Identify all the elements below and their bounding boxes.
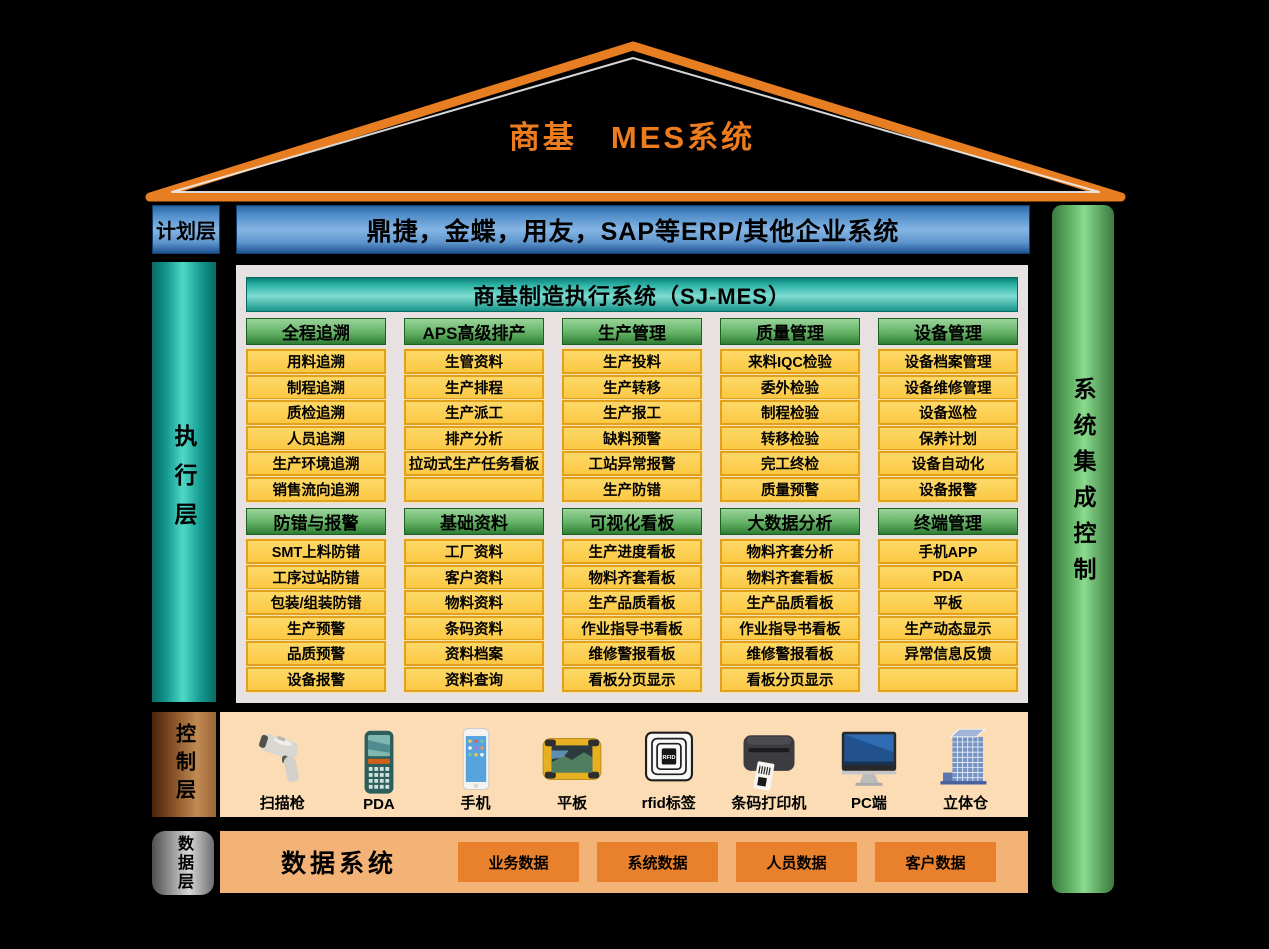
device-phone: 手机	[442, 708, 510, 817]
mes-item: 委外检验	[720, 375, 860, 400]
barcode-printer-icon	[735, 724, 803, 794]
mes-item: 工序过站防错	[246, 565, 386, 590]
column-header: 大数据分析	[720, 508, 860, 535]
device-pda: PDA	[345, 708, 413, 817]
mes-item: 生产预警	[246, 616, 386, 641]
data-system-title: 数据系统	[220, 844, 458, 880]
mes-item: 物料齐套分析	[720, 539, 860, 564]
data-layer-label: 数据层	[171, 835, 195, 892]
device-tablet: 平板	[538, 708, 606, 817]
mes-item: 来料IQC检验	[720, 349, 860, 374]
mes-column-terminal: 终端管理 手机APP PDA 平板 生产动态显示 异常信息反馈	[878, 508, 1018, 692]
mes-item: 物料资料	[404, 590, 544, 615]
control-layer-label-box: 控制层	[152, 712, 216, 817]
mes-item: 销售流向追溯	[246, 477, 386, 502]
column-items: 设备档案管理 设备维修管理 设备巡检 保养计划 设备自动化 设备报警	[878, 349, 1018, 502]
control-layer-label: 控制层	[170, 723, 199, 807]
column-items: 生产进度看板 物料齐套看板 生产品质看板 作业指导书看板 维修警报看板 看板分页…	[562, 539, 702, 692]
pc-icon	[835, 724, 903, 794]
device-label: PDA	[363, 796, 395, 813]
mes-column-bigdata: 大数据分析 物料齐套分析 物料齐套看板 生产品质看板 作业指导书看板 维修警报看…	[720, 508, 860, 692]
data-layer-label-box: 数据层	[152, 831, 214, 895]
diagram-title: 商基 MES系统	[412, 112, 852, 157]
mes-item: 设备档案管理	[878, 349, 1018, 374]
mes-item: 生产环境追溯	[246, 451, 386, 476]
mes-item: 人员追溯	[246, 426, 386, 451]
mes-row2: 防错与报警 SMT上料防错 工序过站防错 包装/组装防错 生产预警 品质预警 设…	[246, 508, 1018, 692]
mes-item: 平板	[878, 590, 1018, 615]
column-header: 全程追溯	[246, 318, 386, 345]
svg-text:RFID: RFID	[662, 755, 675, 761]
device-label: 扫描枪	[260, 792, 305, 813]
mes-panel: 商基制造执行系统（SJ-MES） 全程追溯 用料追溯 制程追溯 质检追溯 人员追…	[236, 265, 1028, 703]
data-systems-panel: 数据系统 业务数据 系统数据 人员数据 客户数据	[220, 831, 1028, 893]
column-items: SMT上料防错 工序过站防错 包装/组装防错 生产预警 品质预警 设备报警	[246, 539, 386, 692]
column-items: 用料追溯 制程追溯 质检追溯 人员追溯 生产环境追溯 销售流向追溯	[246, 349, 386, 502]
mes-item: 设备维修管理	[878, 375, 1018, 400]
execute-layer-bar: 执行层	[152, 262, 216, 702]
mes-column-full-trace: 全程追溯 用料追溯 制程追溯 质检追溯 人员追溯 生产环境追溯 销售流向追溯	[246, 318, 386, 502]
mes-item: 物料齐套看板	[720, 565, 860, 590]
device-label: 平板	[557, 792, 587, 813]
mes-item: 设备巡检	[878, 400, 1018, 425]
mes-item: 工厂资料	[404, 539, 544, 564]
mes-column-production: 生产管理 生产投料 生产转移 生产报工 缺料预警 工站异常报警 生产防错	[562, 318, 702, 502]
mes-item: 保养计划	[878, 426, 1018, 451]
mes-item: 生产报工	[562, 400, 702, 425]
mes-item: 作业指导书看板	[562, 616, 702, 641]
mes-item: 生产转移	[562, 375, 702, 400]
device-printer: 条码打印机	[731, 708, 806, 817]
mes-item: 拉动式生产任务看板	[404, 451, 544, 476]
mes-item: 制程追溯	[246, 375, 386, 400]
mes-item: 作业指导书看板	[720, 616, 860, 641]
mes-item: 维修警报看板	[720, 641, 860, 666]
pda-icon	[345, 728, 413, 798]
mes-item: 设备报警	[246, 667, 386, 692]
mes-item: 生产动态显示	[878, 616, 1018, 641]
mes-item: 生产品质看板	[720, 590, 860, 615]
mes-item: 完工终检	[720, 451, 860, 476]
column-header: 防错与报警	[246, 508, 386, 535]
mes-item: 生管资料	[404, 349, 544, 374]
erp-systems-bar: 鼎捷，金蝶，用友，SAP等ERP/其他企业系统	[236, 205, 1030, 254]
mes-item: 包装/组装防错	[246, 590, 386, 615]
column-items: 生管资料 生产排程 生产派工 排产分析 拉动式生产任务看板	[404, 349, 544, 502]
mes-item: 看板分页显示	[562, 667, 702, 692]
mes-item: 设备自动化	[878, 451, 1018, 476]
mes-title-bar: 商基制造执行系统（SJ-MES）	[246, 277, 1018, 312]
column-header: 终端管理	[878, 508, 1018, 535]
mes-item: 资料档案	[404, 641, 544, 666]
mes-item: 生产投料	[562, 349, 702, 374]
mes-item: 客户资料	[404, 565, 544, 590]
column-header: 质量管理	[720, 318, 860, 345]
mes-column-error-proof: 防错与报警 SMT上料防错 工序过站防错 包装/组装防错 生产预警 品质预警 设…	[246, 508, 386, 692]
column-items: 工厂资料 客户资料 物料资料 条码资料 资料档案 资料查询	[404, 539, 544, 692]
system-integration-bar: 系统集成控制	[1052, 205, 1114, 893]
mes-item: 用料追溯	[246, 349, 386, 374]
column-items: 物料齐套分析 物料齐套看板 生产品质看板 作业指导书看板 维修警报看板 看板分页…	[720, 539, 860, 692]
device-label: 手机	[461, 792, 491, 813]
mes-column-equipment: 设备管理 设备档案管理 设备维修管理 设备巡检 保养计划 设备自动化 设备报警	[878, 318, 1018, 502]
mes-item: 转移检验	[720, 426, 860, 451]
mes-column-aps: APS高级排产 生管资料 生产排程 生产派工 排产分析 拉动式生产任务看板	[404, 318, 544, 502]
column-header: APS高级排产	[404, 318, 544, 345]
barcode-scanner-icon	[248, 724, 316, 794]
mes-item: SMT上料防错	[246, 539, 386, 564]
device-label: PC端	[851, 792, 887, 813]
data-chip-system: 系统数据	[597, 842, 718, 882]
data-chips: 业务数据 系统数据 人员数据 客户数据	[458, 842, 996, 882]
mes-item	[404, 477, 544, 502]
mes-item: 缺料预警	[562, 426, 702, 451]
mes-item: 生产品质看板	[562, 590, 702, 615]
data-chip-customer: 客户数据	[875, 842, 996, 882]
mes-item: 物料齐套看板	[562, 565, 702, 590]
column-items: 手机APP PDA 平板 生产动态显示 异常信息反馈	[878, 539, 1018, 692]
mes-column-base-data: 基础资料 工厂资料 客户资料 物料资料 条码资料 资料档案 资料查询	[404, 508, 544, 692]
column-items: 生产投料 生产转移 生产报工 缺料预警 工站异常报警 生产防错	[562, 349, 702, 502]
data-chip-business: 业务数据	[458, 842, 579, 882]
mes-item: 排产分析	[404, 426, 544, 451]
execute-layer-label: 执行层	[167, 424, 201, 541]
mes-row1: 全程追溯 用料追溯 制程追溯 质检追溯 人员追溯 生产环境追溯 销售流向追溯 A…	[246, 318, 1018, 502]
mes-item: 质量预警	[720, 477, 860, 502]
column-header: 基础资料	[404, 508, 544, 535]
mes-item: 生产防错	[562, 477, 702, 502]
device-warehouse: 立体仓	[932, 708, 1000, 817]
roof-outline	[0, 0, 1269, 215]
architecture-diagram: 商基 MES系统 计划层 鼎捷，金蝶，用友，SAP等ERP/其他企业系统 执行层…	[0, 0, 1269, 949]
rfid-tag-icon: RFID	[635, 724, 703, 794]
device-scanner: 扫描枪	[248, 708, 316, 817]
device-rfid: RFID rfid标签	[635, 708, 703, 817]
warehouse-icon	[932, 724, 1000, 794]
mes-item: 异常信息反馈	[878, 641, 1018, 666]
data-chip-personnel: 人员数据	[736, 842, 857, 882]
mes-item: 资料查询	[404, 667, 544, 692]
mes-item: PDA	[878, 565, 1018, 590]
mes-item: 生产派工	[404, 400, 544, 425]
system-integration-label: 系统集成控制	[1066, 205, 1100, 893]
mes-item: 设备报警	[878, 477, 1018, 502]
column-header: 生产管理	[562, 318, 702, 345]
device-label: rfid标签	[642, 792, 696, 813]
tablet-icon	[538, 724, 606, 794]
device-label: 立体仓	[943, 792, 988, 813]
mes-item: 生产排程	[404, 375, 544, 400]
control-devices-panel: 扫描枪 PDA 手机	[220, 712, 1028, 817]
device-pc: PC端	[835, 708, 903, 817]
mes-item: 手机APP	[878, 539, 1018, 564]
plan-layer-label: 计划层	[152, 205, 220, 254]
mes-item: 维修警报看板	[562, 641, 702, 666]
mes-item: 工站异常报警	[562, 451, 702, 476]
mes-column-kanban: 可视化看板 生产进度看板 物料齐套看板 生产品质看板 作业指导书看板 维修警报看…	[562, 508, 702, 692]
mes-item: 品质预警	[246, 641, 386, 666]
mes-column-quality: 质量管理 来料IQC检验 委外检验 制程检验 转移检验 完工终检 质量预警	[720, 318, 860, 502]
phone-icon	[442, 724, 510, 794]
column-header: 可视化看板	[562, 508, 702, 535]
mes-item: 质检追溯	[246, 400, 386, 425]
column-header: 设备管理	[878, 318, 1018, 345]
column-items: 来料IQC检验 委外检验 制程检验 转移检验 完工终检 质量预警	[720, 349, 860, 502]
device-label: 条码打印机	[731, 792, 806, 813]
mes-item: 条码资料	[404, 616, 544, 641]
mes-item: 看板分页显示	[720, 667, 860, 692]
mes-item	[878, 667, 1018, 692]
mes-item: 制程检验	[720, 400, 860, 425]
mes-item: 生产进度看板	[562, 539, 702, 564]
